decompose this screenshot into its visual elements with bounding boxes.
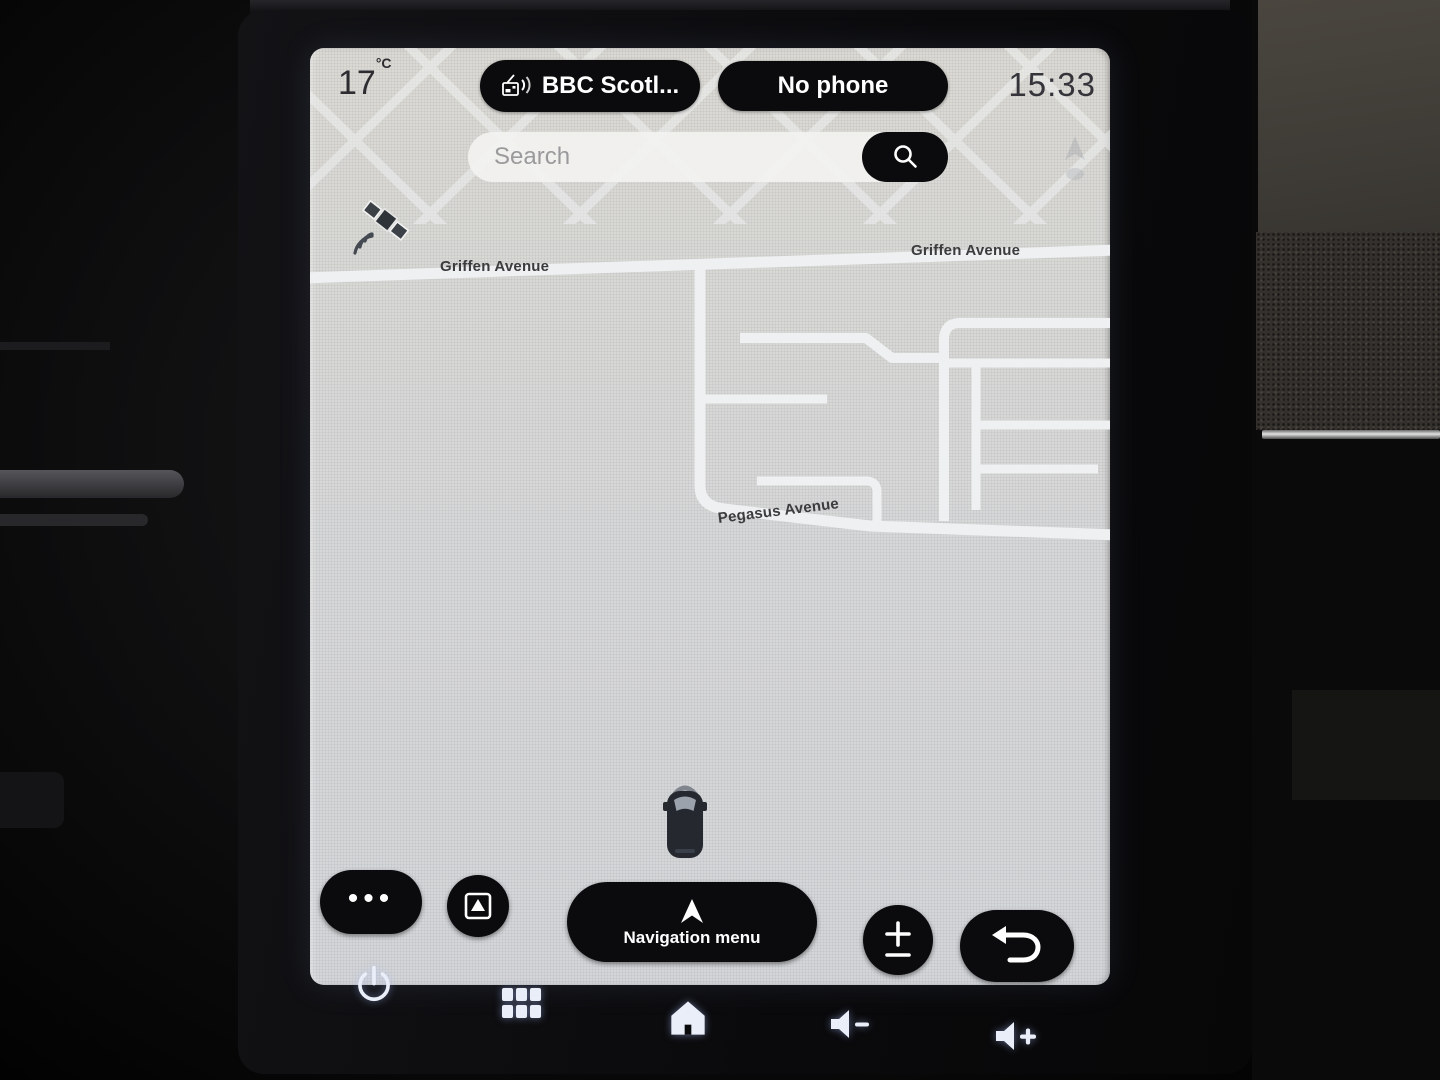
map-orientation-icon	[462, 890, 494, 922]
main-roads	[310, 250, 1110, 535]
compass-faint-icon	[1060, 132, 1090, 188]
zoom-button[interactable]	[863, 905, 933, 975]
clock: 15:33	[1008, 66, 1096, 104]
return-arrow-icon	[989, 923, 1045, 969]
right-panel-upper	[1258, 0, 1440, 232]
search-button[interactable]	[862, 132, 948, 182]
street-label-griffen-avenue-east: Griffen Avenue	[911, 242, 1020, 259]
magnifier-icon	[890, 142, 920, 172]
left-dash-slat	[0, 342, 110, 350]
left-air-vent	[0, 470, 184, 498]
map-view-toggle-button[interactable]	[447, 875, 509, 937]
power-button[interactable]	[352, 964, 396, 1008]
phone-status-label: No phone	[778, 72, 889, 100]
volume-down-button[interactable]	[828, 1006, 878, 1042]
back-button[interactable]	[960, 910, 1074, 982]
temperature-value: 17	[338, 64, 376, 102]
volume-up-button[interactable]	[993, 1018, 1043, 1054]
navigation-menu-label: Navigation menu	[624, 928, 761, 948]
cabin-photo: Griffen Avenue Griffen Avenue Pegasus Av…	[0, 0, 1440, 1080]
display-housing: Griffen Avenue Griffen Avenue Pegasus Av…	[238, 10, 1252, 1074]
radio-source-pill[interactable]: BBC Scotl...	[480, 60, 700, 112]
temperature-unit: °C	[376, 55, 392, 71]
search-placeholder: Search	[494, 143, 570, 171]
outside-temperature: 17°C	[338, 64, 392, 103]
street-label-griffen-avenue-west: Griffen Avenue	[440, 258, 549, 275]
right-panel-texture	[1256, 232, 1440, 430]
left-console-shadow	[0, 772, 64, 828]
car-position-icon	[662, 776, 708, 864]
satellite-icon	[352, 196, 414, 262]
right-dashboard-panel	[1252, 0, 1440, 1080]
plus-minus-icon	[879, 918, 917, 962]
dab-radio-icon	[501, 72, 533, 100]
map-canvas[interactable]	[310, 48, 1110, 985]
apps-grid-button[interactable]	[500, 986, 544, 1020]
search-input[interactable]: Search	[468, 132, 948, 182]
left-air-vent-lower	[0, 514, 148, 526]
navigation-menu-button[interactable]: Navigation menu	[567, 882, 817, 962]
radio-station-label: BBC Scotl...	[542, 72, 679, 100]
more-options-button[interactable]: •••	[320, 870, 422, 934]
home-button[interactable]	[668, 999, 708, 1037]
infotainment-screen[interactable]: Griffen Avenue Griffen Avenue Pegasus Av…	[310, 48, 1110, 985]
phone-status-pill[interactable]: No phone	[718, 61, 948, 111]
right-panel-lower-glow	[1292, 690, 1440, 800]
up-arrow-icon	[678, 897, 706, 925]
right-panel-chrome-trim	[1262, 430, 1440, 439]
